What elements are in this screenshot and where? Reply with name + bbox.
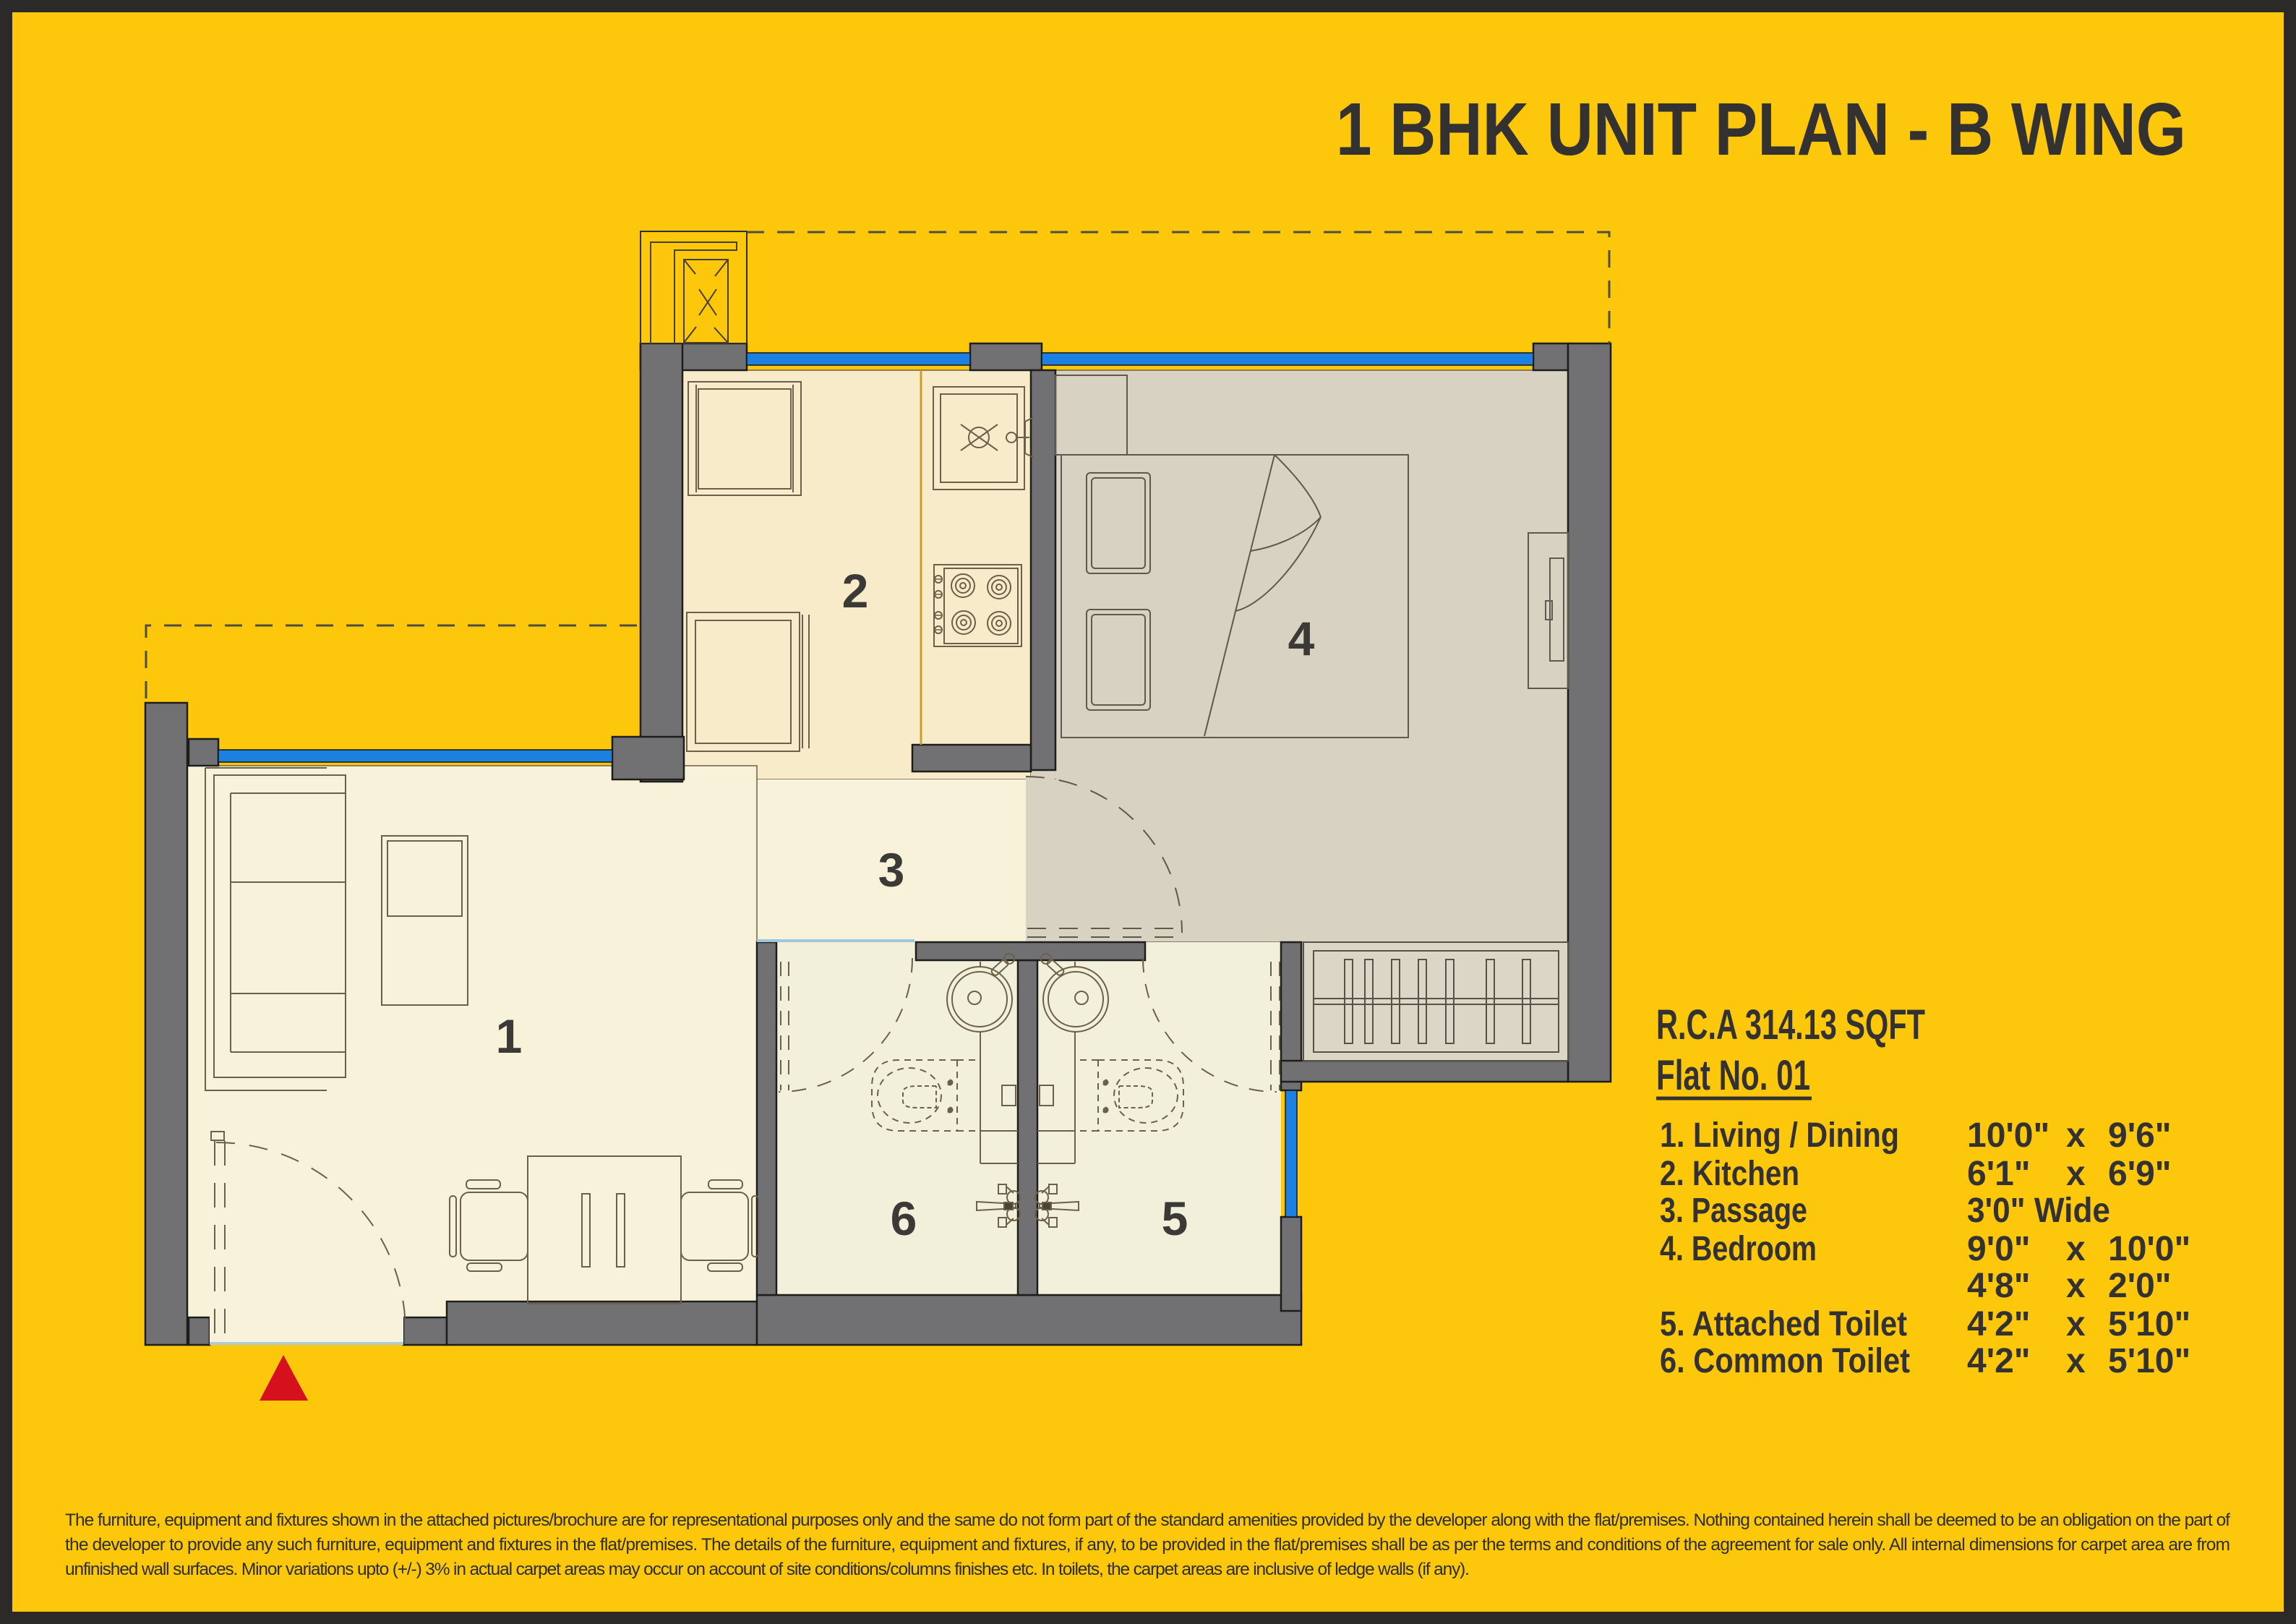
svg-text:Flat No. 01: Flat No. 01 [1656,1052,1810,1099]
svg-text:3'0" Wide: 3'0" Wide [1967,1192,2110,1230]
svg-text:5. Attached Toilet: 5. Attached Toilet [1660,1305,1907,1343]
svg-text:3: 3 [878,843,905,897]
svg-text:the developer to provide any s: the developer to provide any such furnit… [65,1535,2230,1555]
svg-text:4: 4 [1288,612,1315,665]
svg-text:x: x [2066,1342,2086,1380]
svg-text:R.C.A 314.13 SQFT: R.C.A 314.13 SQFT [1656,1001,1925,1048]
svg-text:unfinished wall surfaces. Mino: unfinished wall surfaces. Minor variatio… [65,1560,1470,1579]
svg-text:10'0": 10'0" [1967,1116,2049,1155]
svg-text:6: 6 [891,1192,917,1245]
svg-text:x: x [2066,1155,2086,1193]
svg-text:1: 1 [496,1009,523,1063]
svg-text:6. Common Toilet: 6. Common Toilet [1660,1342,1910,1380]
svg-text:5'10": 5'10" [2108,1305,2190,1343]
svg-text:x: x [2066,1267,2086,1305]
svg-text:x: x [2066,1305,2086,1343]
svg-text:6'9": 6'9" [2108,1155,2172,1193]
svg-text:6'1": 6'1" [1967,1155,2031,1193]
svg-text:1 BHK UNIT PLAN - B WING: 1 BHK UNIT PLAN - B WING [1336,87,2186,171]
svg-text:2: 2 [842,564,869,617]
svg-text:9'0": 9'0" [1967,1230,2031,1268]
svg-text:The furniture, equipment and f: The furniture, equipment and fixtures sh… [65,1510,2230,1530]
svg-text:2'0": 2'0" [2108,1267,2172,1305]
svg-text:1. Living / Dining: 1. Living / Dining [1660,1116,1899,1155]
svg-text:2. Kitchen: 2. Kitchen [1660,1155,1799,1193]
svg-text:4'2": 4'2" [1967,1305,2031,1343]
svg-text:5'10": 5'10" [2108,1342,2190,1380]
svg-text:x: x [2066,1230,2086,1268]
svg-text:3. Passage: 3. Passage [1660,1192,1807,1230]
svg-text:10'0": 10'0" [2108,1230,2190,1268]
svg-text:5: 5 [1162,1192,1188,1245]
svg-text:x: x [2066,1116,2086,1155]
svg-text:4'2": 4'2" [1967,1342,2031,1380]
svg-text:9'6": 9'6" [2108,1116,2172,1155]
svg-text:4. Bedroom: 4. Bedroom [1660,1230,1817,1268]
svg-text:4'8": 4'8" [1967,1267,2031,1305]
